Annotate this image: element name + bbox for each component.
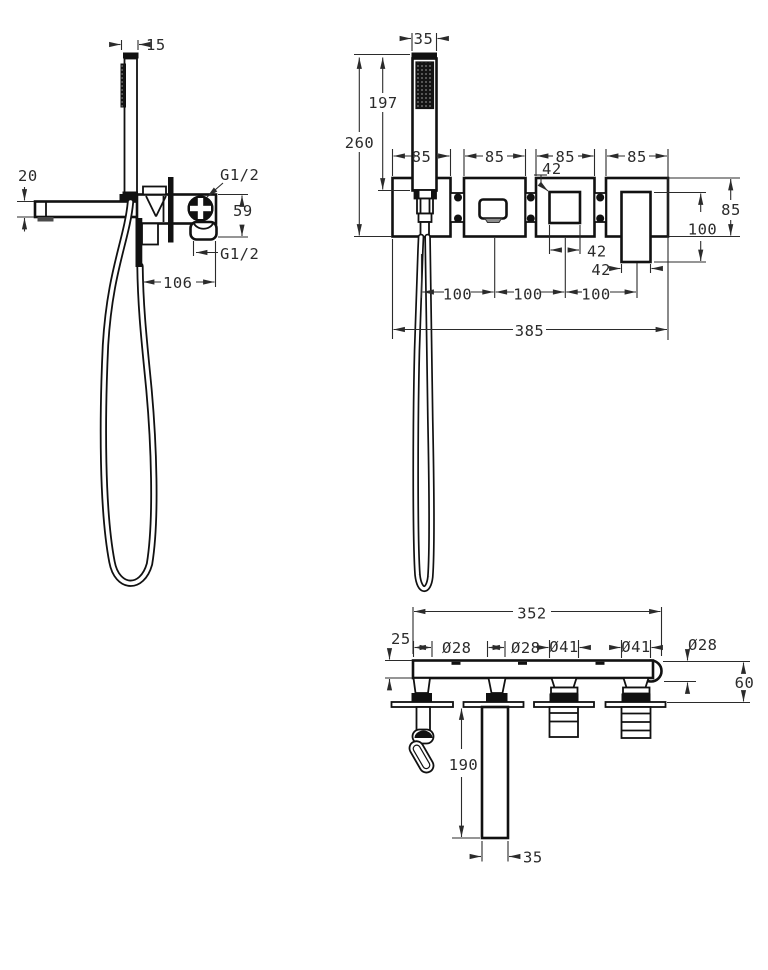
dim-85-plate2: 85	[485, 148, 505, 166]
top-f2-wall-block	[486, 693, 508, 703]
dim-20: 20	[18, 167, 38, 185]
side-hose-dark-segment	[136, 218, 143, 267]
dim-dia41-f4: Ø41	[621, 638, 651, 656]
front-lever-handle	[622, 192, 651, 262]
top-f3-collar	[551, 688, 578, 694]
dim-100-span2: 100	[513, 286, 543, 304]
dim-197: 197	[368, 94, 398, 112]
dim-106: 106	[163, 274, 193, 292]
dim-35-top: 35	[414, 30, 434, 48]
dim-85-right: 85	[721, 201, 741, 219]
front-connector-1-screw-bottom	[454, 215, 462, 223]
front-connector-2-screw-top	[527, 194, 535, 202]
dim-385: 385	[515, 322, 545, 340]
dim-dia41-f3: Ø41	[549, 638, 579, 656]
side-body-top-lug	[143, 187, 166, 195]
front-holder-collar-left-nub	[415, 191, 420, 199]
top-f3-wall-block	[550, 694, 579, 703]
front-connector-3-screw-bottom	[596, 215, 604, 223]
dim-42-knob: 42	[587, 243, 607, 261]
top-f4-collar	[623, 688, 650, 694]
dim-dia28-f1: Ø28	[442, 639, 472, 657]
dim-g12-top: G1/2	[220, 166, 259, 184]
dim-100-span1: 100	[443, 286, 473, 304]
top-view: 352 25 Ø28 Ø28 Ø41 Ø41	[385, 605, 754, 867]
top-rail-joint-2	[518, 662, 527, 665]
top-f1-wall-block	[412, 693, 433, 703]
dim-25: 25	[391, 630, 411, 648]
top-f1-grip-outer	[407, 739, 436, 775]
front-connector-1-screw-top	[454, 194, 462, 202]
side-view: 15 20 G1/2 59 G1/2 106	[17, 36, 259, 583]
front-spout-lip	[485, 219, 502, 223]
dim-35-bottom: 35	[523, 849, 543, 867]
side-handshower-face	[121, 64, 126, 107]
dim-85-plate4: 85	[627, 148, 647, 166]
dim-60: 60	[735, 674, 755, 692]
front-holder-cone-step1	[417, 199, 433, 214]
dim-15: 15	[146, 36, 166, 54]
front-handshower-face	[416, 62, 434, 109]
top-f2-stem	[489, 678, 506, 693]
side-wall-section-line	[168, 177, 174, 243]
dim-260: 260	[345, 134, 375, 152]
front-holder-collar-right-nub	[431, 191, 436, 199]
top-rail-joint-1	[452, 662, 461, 665]
side-handshower-handle	[125, 59, 138, 194]
side-spout	[35, 202, 138, 218]
front-holder-cone-step2	[419, 214, 432, 223]
front-spout-mouth	[480, 200, 507, 219]
top-f1-stem	[414, 678, 431, 693]
dim-dia28-f2: Ø28	[511, 639, 541, 657]
dim-190: 190	[449, 756, 479, 774]
front-connector-2-screw-bottom	[527, 215, 535, 223]
front-connector-3-screw-top	[596, 194, 604, 202]
dim-g12-bottom: G1/2	[220, 245, 259, 263]
top-spout-projection	[482, 707, 508, 838]
top-rail	[413, 661, 653, 679]
technical-drawing: 15 20 G1/2 59 G1/2 106	[0, 0, 768, 970]
dim-dia28-elbow: Ø28	[688, 636, 718, 654]
top-f4-wall-block	[622, 694, 651, 703]
top-f1-lever-grip	[407, 739, 436, 775]
drawing-canvas: 15 20 G1/2 59 G1/2 106	[0, 0, 768, 970]
dim-100-span3: 100	[581, 286, 611, 304]
side-inlet-slot-v	[198, 198, 203, 219]
side-hose-outer	[103, 202, 153, 583]
dim-100-right: 100	[688, 221, 718, 239]
side-body-bottom-lug	[142, 224, 158, 245]
dim-42-handle: 42	[591, 261, 611, 279]
dim-42-knob-top: 42	[542, 160, 562, 178]
top-rail-joint-3	[596, 662, 605, 665]
dim-352: 352	[517, 605, 547, 623]
side-spout-aerator	[38, 217, 54, 222]
top-f4-stem	[624, 678, 649, 688]
front-view: 35 197 260 85 85 85	[345, 30, 741, 589]
dim-85-plate1: 85	[412, 148, 432, 166]
dim-59: 59	[233, 202, 253, 220]
front-diverter-knob	[550, 192, 581, 223]
top-f3-stem	[552, 678, 577, 688]
